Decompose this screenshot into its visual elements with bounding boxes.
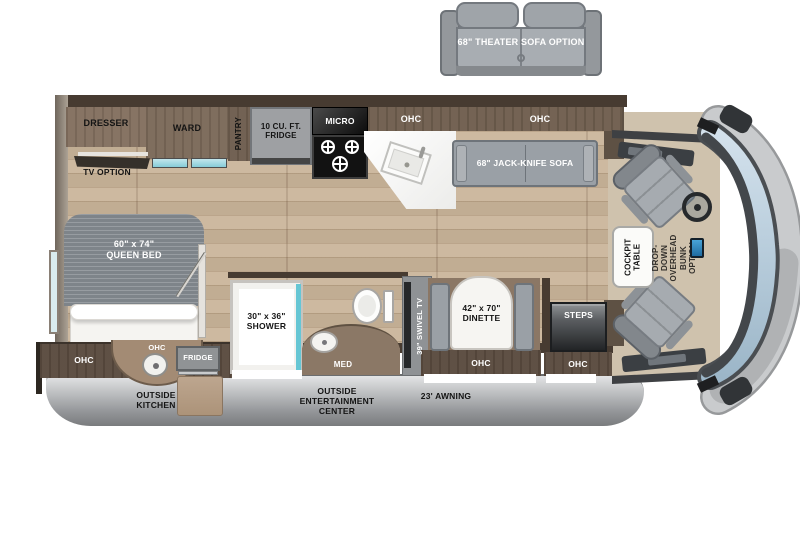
- kitchen-ohc-left-label: OHC: [368, 107, 454, 131]
- cockpit-table-label: COCKPIT TABLE: [624, 238, 642, 275]
- roof-trim-top: [612, 130, 712, 143]
- outside-kitchen-sink: [142, 353, 168, 377]
- rear-window: [49, 250, 59, 334]
- ward-drawer-1: [152, 158, 188, 168]
- steering-wheel-icon: [682, 192, 712, 222]
- theater-sofa-label: 68" THEATER SOFA OPTION: [440, 34, 602, 50]
- dinette-bench-left: [430, 283, 450, 351]
- bedroom-ohc-label: OHC: [52, 350, 116, 370]
- refrigerator-vent: [252, 158, 310, 164]
- shower-label: 30" x 36" SHOWER: [230, 305, 303, 337]
- steps-wall-left: [542, 278, 550, 352]
- stove-burners-icon: [314, 137, 366, 177]
- theater-sofa-option: 68" THEATER SOFA OPTION: [440, 2, 602, 86]
- pantry-label: PANTRY: [234, 117, 243, 150]
- tv-option-shelf: [78, 152, 148, 156]
- sofa-back-cushion-left: [456, 2, 519, 29]
- outside-entertainment-label: OUTSIDE ENTERTAINMENT CENTER: [278, 381, 396, 421]
- outside-fridge-label: FRIDGE: [176, 346, 220, 371]
- kitchen-ohc-right-label: OHC: [458, 107, 622, 131]
- wall-window-dinette: [424, 374, 536, 383]
- dresser-label: DRESSER: [66, 107, 146, 139]
- console-screen: [690, 238, 704, 258]
- microwave-label: MICRO: [312, 107, 368, 135]
- toilet-seat: [358, 295, 376, 317]
- floor-trim-bottom: [612, 371, 712, 384]
- sofa-cupholder: [517, 54, 525, 62]
- dinette-label: 42" x 70" DINETTE: [450, 296, 513, 330]
- jack-knife-sofa-label: 68" JACK-KNIFE SOFA: [452, 140, 598, 187]
- dinette-bench-right: [514, 283, 534, 351]
- outside-fridge-shelf: [178, 371, 218, 375]
- outside-sink-drain-icon: [153, 363, 159, 369]
- outside-kitchen-label: OUTSIDE KITCHEN: [108, 386, 204, 414]
- top-wall: [55, 95, 627, 107]
- entry-door-opening: [546, 374, 596, 383]
- refrigerator-label: 10 CU. FT. FRIDGE: [250, 110, 312, 152]
- toilet-bowl: [352, 288, 382, 324]
- tv-option-label: TV OPTION: [62, 165, 152, 179]
- dinette-ohc-label: OHC: [421, 350, 541, 376]
- pantry: PANTRY: [228, 107, 250, 161]
- med-cabinet-label: MED: [318, 358, 368, 372]
- queen-bed-label: 60" x 74" QUEEN BED: [64, 232, 204, 268]
- steps-label: STEPS: [550, 308, 607, 322]
- sofa-back-cushion-right: [523, 2, 586, 29]
- steering-hub: [694, 204, 701, 211]
- vanity-sink-drain-icon: [322, 340, 327, 345]
- vanity-sink: [310, 331, 338, 353]
- ward-drawer-2: [191, 158, 227, 168]
- wall-window-bath: [232, 370, 302, 379]
- queen-bed-blanket-roll: [70, 304, 198, 320]
- stove: [312, 135, 368, 179]
- swivel-tv-label: 39" SWIVEL TV: [416, 298, 425, 355]
- wardrobe-label: WARD: [146, 107, 228, 149]
- toilet-tank: [383, 290, 394, 323]
- bathroom-wall: [228, 272, 408, 278]
- rv-floorplan: 68" THEATER SOFA OPTION DRESSER WARD PAN…: [0, 0, 800, 545]
- sofa-base-rail: [456, 66, 586, 76]
- awning-label: 23' AWNING: [398, 388, 494, 404]
